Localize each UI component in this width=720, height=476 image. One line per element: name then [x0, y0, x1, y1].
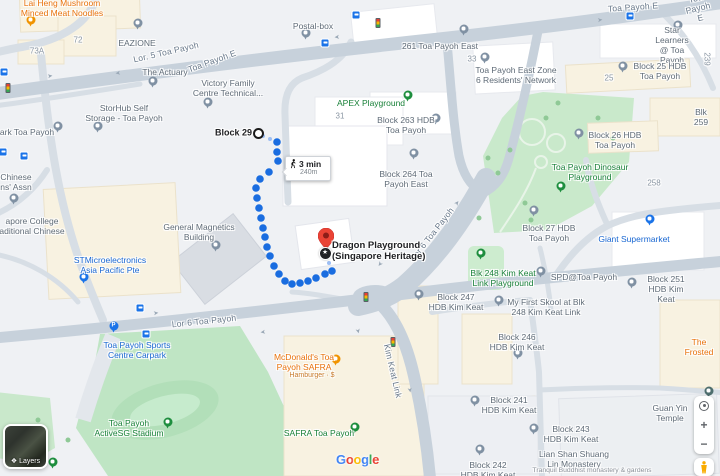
map-pin-my-first-skool[interactable]	[494, 295, 503, 304]
map-pin-block-247[interactable]	[414, 289, 423, 298]
google-logo-letter: e	[372, 452, 379, 467]
map-pin-dinosaur-playground[interactable]	[556, 181, 565, 190]
street-view-pegman-button[interactable]	[694, 458, 714, 476]
poi-label-block-263[interactable]: Block 263 HDB Toa Payoh	[377, 115, 435, 135]
poi-label-mcdonalds-subtitle[interactable]: Hamburger · $	[289, 372, 334, 380]
poi-label-postal-box[interactable]: Postal-box	[293, 21, 333, 31]
bus-stop-icon[interactable]	[626, 12, 635, 21]
bus-stop-icon[interactable]	[0, 148, 8, 157]
building-number: 72	[74, 35, 83, 44]
poi-label-college-tcm[interactable]: apore College aditional Chinese	[0, 216, 65, 236]
poi-label-block-242[interactable]: Block 242 HDB Kim Keat	[461, 460, 516, 476]
my-location-icon	[699, 401, 709, 411]
poi-label-block-27[interactable]: Block 27 HDB Toa Payoh	[523, 223, 576, 243]
route-info-tooltip[interactable]: 3 min 240m	[285, 156, 331, 181]
poi-label-blk-259[interactable]: Blk 259	[692, 107, 711, 127]
poi-label-ark-toa-payoh[interactable]: ark Toa Payoh	[0, 127, 54, 137]
poi-label-storhub[interactable]: StorHub Self Storage - Toa Payoh	[85, 103, 162, 123]
traffic-light-icon	[6, 83, 11, 93]
building-number: 239	[702, 52, 711, 65]
map-pin-spd-toa-payoh[interactable]	[536, 266, 545, 275]
map-pin-tp-east-zone6[interactable]	[480, 52, 489, 61]
poi-label-tp-east-zone6[interactable]: Toa Payoh East Zone 6 Residents' Network	[475, 65, 556, 85]
poi-label-block-241[interactable]: Block 241 HDB Kim Keat	[482, 395, 537, 415]
poi-label-apex-playground[interactable]: APEX Playground	[337, 98, 405, 108]
bus-stop-icon[interactable]	[136, 304, 145, 313]
poi-label-star-learners[interactable]: Star Learners @ Toa Payoh	[648, 25, 696, 65]
map-pin-park-south[interactable]	[48, 457, 57, 466]
bus-stop-icon[interactable]	[352, 11, 361, 20]
poi-label-block-264[interactable]: Block 264 Toa Payoh East	[379, 169, 432, 189]
poi-label-stmicroelectronics[interactable]: STMicroelectronics Asia Pacific Pte	[74, 255, 146, 275]
poi-label-mcdonalds[interactable]: McDonald's Toa Payoh SAFRA	[274, 352, 334, 372]
building-number: 73A	[30, 46, 44, 55]
poi-label-block-243[interactable]: Block 243 HDB Kim Keat	[544, 424, 599, 444]
map-pin-block-25[interactable]	[618, 61, 627, 70]
layers-button[interactable]: ❖ Layers	[3, 424, 48, 469]
route-duration: 3 min	[299, 159, 321, 169]
map-pin-ark-toa-payoh[interactable]	[53, 121, 62, 130]
poi-label-261-toa-payoh-east[interactable]: 261 Toa Payoh East	[402, 41, 478, 51]
poi-label-lian-shan-subtitle[interactable]: Tranquil Buddhist monastery & gardens	[532, 467, 651, 475]
walking-icon	[290, 159, 297, 169]
pegman-icon	[700, 461, 708, 474]
poi-label-sports-centre-carpark[interactable]: Toa Payoh Sports Centre Carpark	[103, 340, 170, 360]
map-pin-activesg-stadium[interactable]	[163, 417, 172, 426]
poi-label-the-actuary[interactable]: The Actuary	[142, 67, 187, 77]
layers-label: Layers	[19, 458, 40, 465]
map-pin-blk-248-playground[interactable]	[476, 248, 485, 257]
map-pin-block-251[interactable]	[627, 277, 636, 286]
map-pin-chinese-assn[interactable]	[9, 193, 18, 202]
my-location-button[interactable]	[694, 397, 714, 415]
layers-icon: ❖	[11, 458, 17, 465]
poi-label-eazione[interactable]: EAZIONE	[118, 38, 155, 48]
poi-label-lai-heng[interactable]: Lai Heng Mushroom Minced Meat Noodles	[21, 0, 103, 18]
zoom-out-button[interactable]: −	[694, 435, 714, 453]
map-pin-sports-centre-carpark[interactable]: P	[109, 321, 118, 330]
building-number: 25	[605, 73, 614, 82]
poi-label-safra-toa-payoh[interactable]: SAFRA Toa Payoh	[284, 428, 354, 438]
road-arrow-icon: ➤	[260, 328, 267, 337]
poi-label-my-first-skool[interactable]: My First Skool at Blk 248 Kim Keat Link	[507, 297, 584, 317]
poi-label-dinosaur-playground[interactable]: Toa Payoh Dinosaur Playground	[552, 162, 629, 182]
poi-label-spd-toa-payoh[interactable]: SPD@Toa Payoh	[551, 272, 617, 282]
bus-stop-icon[interactable]	[0, 68, 9, 77]
google-logo-letter: g	[361, 452, 369, 467]
poi-label-block-247[interactable]: Block 247 HDB Kim Keat	[429, 292, 484, 312]
traffic-light-icon	[364, 292, 369, 302]
road-arrow-icon: ➤	[597, 16, 603, 25]
map-pin-guan-yin-temple[interactable]	[704, 386, 713, 395]
poi-label-block-25[interactable]: Block 25 HDB Toa Payoh	[634, 61, 687, 81]
bus-stop-icon[interactable]	[20, 152, 29, 161]
poi-label-block-246[interactable]: Block 246 HDB Kim Keat	[490, 332, 545, 352]
map-pin-victory-family[interactable]	[203, 97, 212, 106]
origin-label: Block 29	[215, 128, 252, 139]
map-pin-block-27[interactable]	[529, 205, 538, 214]
poi-label-block-251[interactable]: Block 251 HDB Kim Keat	[639, 274, 693, 304]
road-arrow-icon: ➤	[334, 33, 340, 41]
poi-label-activesg-stadium[interactable]: Toa Payoh ActiveSG Stadium	[95, 418, 164, 438]
route-origin-marker[interactable]	[253, 128, 264, 139]
bus-stop-icon[interactable]	[321, 39, 330, 48]
route-distance: 240m	[300, 169, 326, 176]
traffic-light-icon	[376, 18, 381, 28]
map-canvas[interactable]: Block 29 ★ Dragon Playground (Singapore …	[0, 0, 720, 476]
poi-label-general-magnetics[interactable]: General Magnetics Building	[163, 222, 234, 242]
poi-label-chinese-assn[interactable]: Chinese ns' Assn	[0, 172, 31, 192]
building-number: 258	[647, 178, 660, 187]
poi-label-the-frosted[interactable]: The Frosted	[685, 337, 714, 357]
road-arrow-icon: ➤	[47, 72, 54, 81]
poi-label-block-26[interactable]: Block 26 HDB Toa Payoh	[589, 130, 642, 150]
google-logo-letter: o	[353, 452, 361, 467]
poi-label-guan-yin-temple[interactable]: Guan Yin Temple	[645, 403, 695, 423]
google-logo[interactable]: Google	[336, 452, 379, 467]
map-pin-block-26[interactable]	[574, 128, 583, 137]
bus-stop-icon[interactable]	[142, 330, 151, 339]
google-logo-letter: G	[336, 452, 346, 467]
map-controls-panel: + −	[694, 396, 714, 454]
road-arrow-icon: ➤	[115, 69, 122, 78]
building-number: 33	[468, 54, 477, 63]
zoom-in-button[interactable]: +	[694, 416, 714, 434]
map-pin-the-actuary[interactable]	[148, 76, 157, 85]
heritage-star-badge-icon[interactable]: ★	[319, 247, 332, 260]
poi-label-giant-supermarket[interactable]: Giant Supermarket	[598, 234, 669, 244]
map-pin-block-243[interactable]	[529, 423, 538, 432]
map-pin-block-242[interactable]	[475, 444, 484, 453]
map-pin-giant-supermarket[interactable]	[645, 214, 654, 223]
map-pin-eazione[interactable]	[133, 18, 142, 27]
destination-label[interactable]: Dragon Playground (Singapore Heritage)	[332, 240, 425, 262]
building-number: 31	[336, 111, 345, 120]
poi-label-victory-family[interactable]: Victory Family Centre Technical...	[193, 78, 263, 98]
map-pin-block-264[interactable]	[409, 148, 418, 157]
map-pin-261-toa-payoh-east[interactable]	[459, 24, 468, 33]
poi-label-blk-248-playground[interactable]: Blk 248 Kim Keat Link Playground	[470, 268, 535, 288]
road-arrow-icon: ➤	[153, 309, 159, 318]
map-pin-block-241[interactable]	[470, 395, 479, 404]
